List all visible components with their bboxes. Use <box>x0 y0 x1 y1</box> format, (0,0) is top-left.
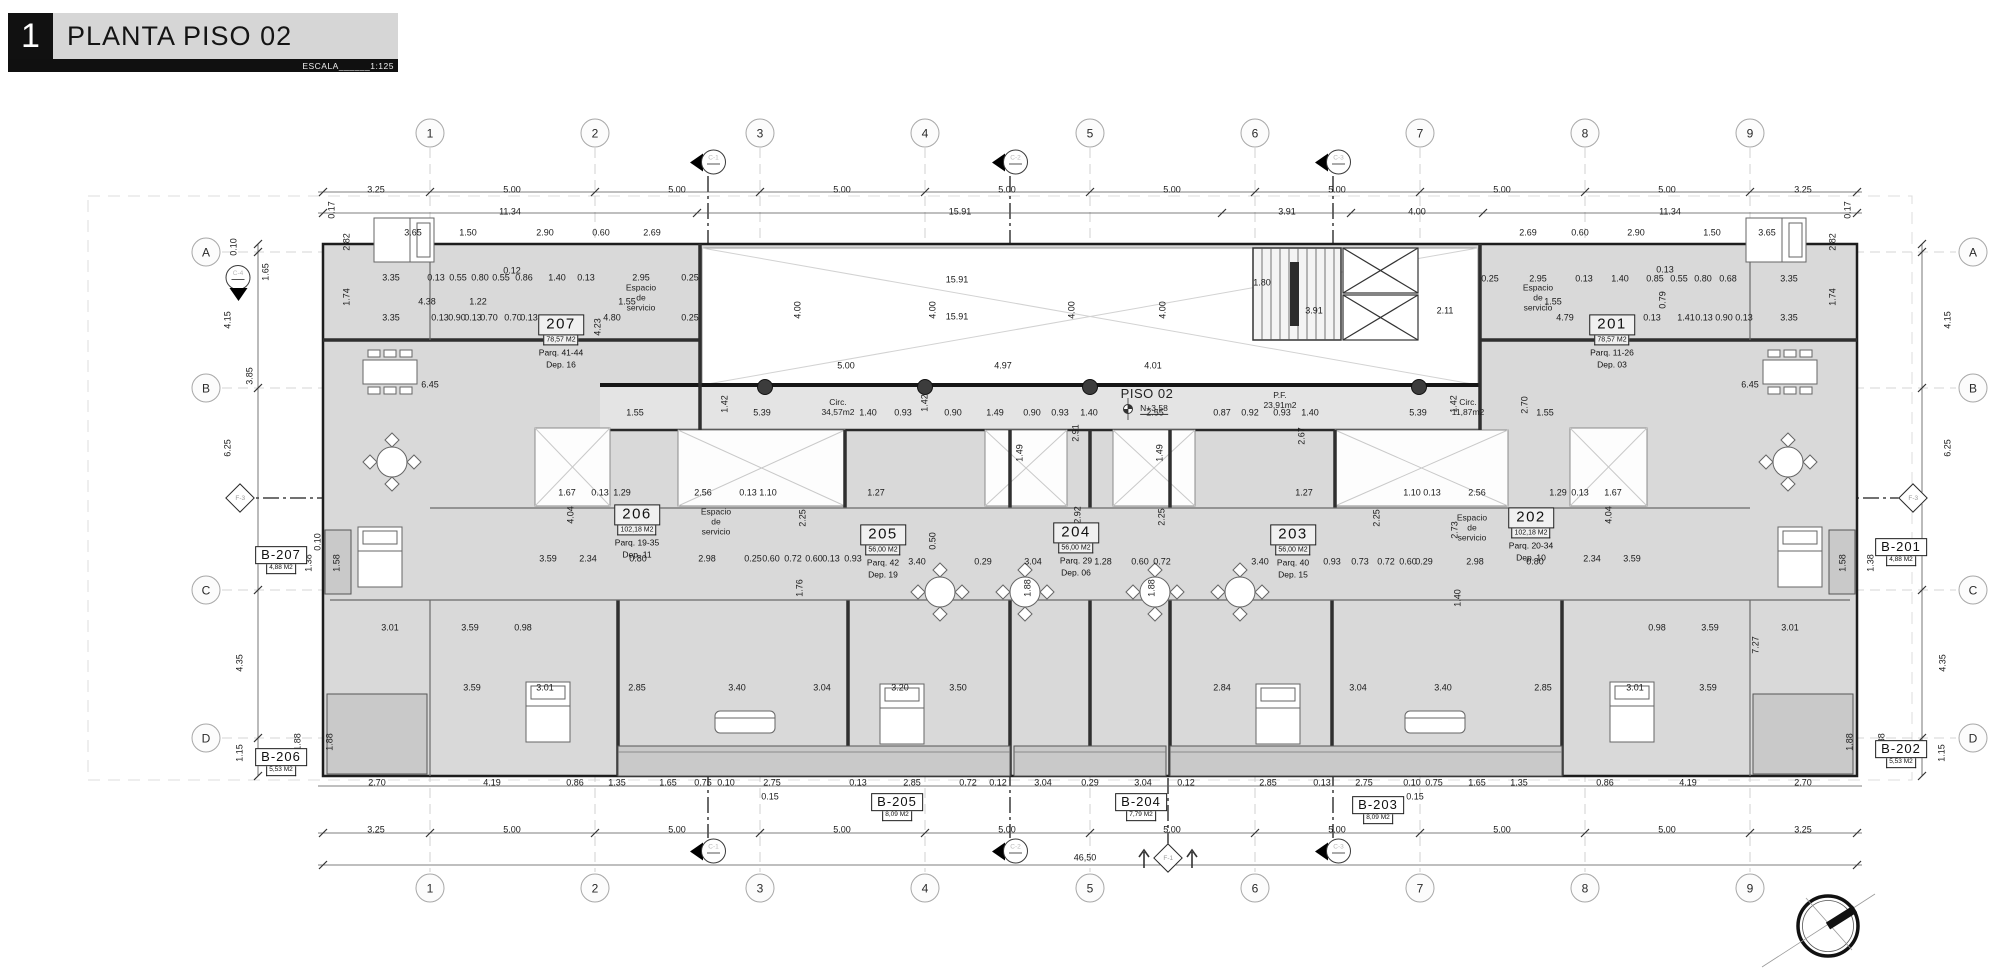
dimension-label: 5.00 <box>668 826 686 835</box>
dimension-label: 6.45 <box>421 381 439 390</box>
dimension-label: 2.91 <box>1072 424 1081 442</box>
dimension-label: 0.12 <box>503 267 521 276</box>
dimension-label: 3.25 <box>1794 826 1812 835</box>
dimension-label: 1.10 <box>1403 489 1421 498</box>
dimension-label: 0.13 <box>1423 489 1441 498</box>
dimension-label: 4.01 <box>1144 362 1162 371</box>
grid-bubble-row-D: D <box>192 724 221 753</box>
dimension-label: 2.67 <box>1298 427 1307 445</box>
dimension-label: 3.04 <box>1024 558 1042 567</box>
dimension-label: 2.92 <box>1074 506 1083 524</box>
dimension-label: 3.25 <box>367 186 385 195</box>
grid-bubble-col-8: 8 <box>1571 874 1600 903</box>
dimension-label: 0.80 <box>471 274 489 283</box>
dimension-label: 1.49 <box>1156 444 1165 462</box>
dimension-label: 0.15 <box>761 793 779 802</box>
plan-text: P.F. 23,91m2 <box>1263 390 1296 410</box>
dimension-label: 1.50 <box>459 229 477 238</box>
marker-label: C-4 <box>232 271 244 280</box>
dimension-label: 0.73 <box>1351 558 1369 567</box>
section-marker-C-4: C-4 <box>226 265 251 301</box>
dimension-label: 2.85 <box>1534 684 1552 693</box>
dimension-label: 0.25 <box>1481 275 1499 284</box>
dimension-label: 0.75 <box>694 779 712 788</box>
dimension-label: 3.25 <box>367 826 385 835</box>
unit-deposit: Dep. 10 <box>1508 552 1554 562</box>
dimension-label: 0.12 <box>1177 779 1195 788</box>
plan-text: Espacio de servicio <box>626 283 656 314</box>
dimension-label: 0.29 <box>974 558 992 567</box>
dimension-label: 0.98 <box>514 624 532 633</box>
dimension-label: 15.91 <box>946 276 969 285</box>
dimension-label: 3.40 <box>1434 684 1452 693</box>
unit-parking: Parq. 29 <box>1053 555 1099 565</box>
balcony-label-B-201: B-2014,88 M2 <box>1875 538 1927 566</box>
unit-number: 207 <box>538 314 584 335</box>
balcony-name: B-202 <box>1875 740 1927 758</box>
grid-bubble-col-2: 2 <box>581 119 610 148</box>
grid-bubble-col-7: 7 <box>1406 119 1435 148</box>
dimension-label: 0.90 <box>448 314 466 323</box>
dimension-label: 3.01 <box>381 624 399 633</box>
dimension-label: 46,50 <box>1074 854 1097 863</box>
dimension-label: 2.56 <box>694 489 712 498</box>
grid-bubble-col-3: 3 <box>746 874 775 903</box>
plan-text: Espacio de servicio <box>1523 283 1553 314</box>
dimension-label: 1.15 <box>236 744 245 762</box>
unit-area: 102,18 M2 <box>1511 528 1550 538</box>
annotation-overlay: 3.255.005.005.005.005.005.005.005.003.25… <box>0 0 2000 969</box>
dimension-label: 0.60 <box>762 555 780 564</box>
dimension-label: 0.72 <box>1377 558 1395 567</box>
dimension-label: 0.13 <box>464 314 482 323</box>
dimension-label: 3.59 <box>1623 555 1641 564</box>
dimension-label: 5.00 <box>503 826 521 835</box>
dimension-label: 1.40 <box>1454 589 1463 607</box>
dimension-label: 4.97 <box>994 362 1012 371</box>
dimension-label: 0.13 <box>1313 779 1331 788</box>
dimension-label: 0.72 <box>1153 558 1171 567</box>
dimension-label: 5.00 <box>1658 826 1676 835</box>
dimension-label: 2.56 <box>1468 489 1486 498</box>
unit-deposit: Dep. 15 <box>1270 569 1316 579</box>
dimension-label: 0.13 <box>1735 314 1753 323</box>
dimension-label: 2.25 <box>1158 508 1167 526</box>
dimension-label: 3.59 <box>1701 624 1719 633</box>
unit-parking: Parq. 20-34 <box>1508 540 1554 550</box>
section-circle-icon: C-4 <box>226 265 251 290</box>
section-marker-C-3: C-3 <box>1315 839 1351 864</box>
dimension-label: 4.00 <box>794 301 803 319</box>
unit-area: 78,57 M2 <box>1594 335 1629 345</box>
dimension-label: 0.13 <box>427 274 445 283</box>
dimension-label: 0.90 <box>944 409 962 418</box>
unit-area: 102,18 M2 <box>617 525 656 535</box>
dimension-label: 5.00 <box>503 186 521 195</box>
section-circle-icon: C-2 <box>1003 839 1028 864</box>
section-marker-C-1: C-1 <box>690 839 726 864</box>
grid-bubble-col-2: 2 <box>581 874 610 903</box>
dimension-label: 4.19 <box>1679 779 1697 788</box>
grid-bubble-col-1: 1 <box>416 119 445 148</box>
dimension-label: 0.29 <box>1081 779 1099 788</box>
unit-number: 206 <box>614 504 660 525</box>
dimension-label: 1.58 <box>333 554 342 572</box>
dimension-label: 3.25 <box>1794 186 1812 195</box>
unit-label-204: 20456,00 M2Parq. 29Dep. 06 <box>1053 522 1099 577</box>
dimension-label: 0.72 <box>959 779 977 788</box>
unit-deposit: Dep. 19 <box>860 569 906 579</box>
dimension-label: 2.34 <box>579 555 597 564</box>
dimension-label: 1.22 <box>469 298 487 307</box>
marker-label: C-3 <box>1332 845 1344 854</box>
plan-text: Circ. 11,87m2 <box>1452 397 1484 417</box>
unit-label-205: 20556,00 M2Parq. 42Dep. 19 <box>860 524 906 579</box>
dimension-label: 5.00 <box>998 186 1016 195</box>
dimension-label: 0.13 <box>520 314 538 323</box>
dimension-label: 3.85 <box>246 367 255 385</box>
dimension-label: 1.49 <box>1016 444 1025 462</box>
dimension-label: 6.25 <box>1944 439 1953 457</box>
dimension-label: 0.85 <box>1646 275 1664 284</box>
dimension-label: 1.29 <box>1549 489 1567 498</box>
dimension-label: 4.04 <box>1605 506 1614 524</box>
dimension-label: 2.85 <box>1259 779 1277 788</box>
unit-label-203: 20356,00 M2Parq. 40Dep. 15 <box>1270 524 1316 579</box>
dimension-label: 0.70 <box>480 314 498 323</box>
grid-bubble-col-5: 5 <box>1076 119 1105 148</box>
dimension-label: 1.40 <box>548 274 566 283</box>
dimension-label: 0.13 <box>591 489 609 498</box>
grid-bubble-row-A: A <box>192 238 221 267</box>
dimension-label: 0.60 <box>805 555 823 564</box>
dimension-label: 1.88 <box>1024 579 1033 597</box>
dimension-label: 2.90 <box>1627 229 1645 238</box>
dimension-label: 3.01 <box>1781 624 1799 633</box>
grid-bubble-col-4: 4 <box>911 874 940 903</box>
dimension-label: 3.91 <box>1278 208 1296 217</box>
dimension-label: 0.13 <box>1695 314 1713 323</box>
dimension-label: 0.93 <box>1323 558 1341 567</box>
dimension-label: 3.40 <box>728 684 746 693</box>
dimension-label: 3.35 <box>382 274 400 283</box>
dimension-label: 0.86 <box>1596 779 1614 788</box>
dimension-label: 2.75 <box>763 779 781 788</box>
dimension-label: 0.60 <box>1571 229 1589 238</box>
dimension-label: 0.13 <box>431 314 449 323</box>
dimension-label: 1.55 <box>1536 409 1554 418</box>
dimension-label: 0.10 <box>230 238 239 256</box>
dimension-label: 0.93 <box>1051 409 1069 418</box>
dimension-label: 3.01 <box>1626 684 1644 693</box>
marker-label: F-1 <box>1163 855 1173 862</box>
dimension-label: 3.20 <box>891 684 909 693</box>
dimension-label: 1.65 <box>262 263 271 281</box>
dimension-label: 1.50 <box>1703 229 1721 238</box>
dimension-label: 1.42 <box>721 395 730 413</box>
marker-label: C-2 <box>1009 156 1021 165</box>
dimension-label: 4.00 <box>1068 301 1077 319</box>
dimension-label: 3.65 <box>1758 229 1776 238</box>
dimension-label: 0.13 <box>739 489 757 498</box>
dimension-label: 4.00 <box>1159 301 1168 319</box>
dimension-label: 1.76 <box>796 579 805 597</box>
dimension-label: 3.04 <box>813 684 831 693</box>
grid-bubble-row-B: B <box>192 374 221 403</box>
balcony-area: 7,79 M2 <box>1126 811 1156 820</box>
balcony-area: 8,09 M2 <box>882 811 912 820</box>
dimension-label: 1.67 <box>558 489 576 498</box>
dimension-label: 5.00 <box>1328 186 1346 195</box>
dimension-label: 1.40 <box>1611 275 1629 284</box>
plan-text: Espacio de servicio <box>701 507 731 538</box>
dimension-label: 1.58 <box>1839 554 1848 572</box>
dimension-label: 3.50 <box>949 684 967 693</box>
unit-number: 204 <box>1053 522 1099 543</box>
dimension-label: 5.39 <box>1409 409 1427 418</box>
dimension-label: 7.27 <box>1752 636 1761 654</box>
unit-number: 202 <box>1508 507 1554 528</box>
dimension-label: 5.00 <box>1163 186 1181 195</box>
dimension-label: 5.00 <box>1493 826 1511 835</box>
dimension-label: 3.91 <box>1305 307 1323 316</box>
dimension-label: 2.11 <box>1437 307 1454 316</box>
grid-bubble-col-7: 7 <box>1406 874 1435 903</box>
dimension-label: 3.04 <box>1349 684 1367 693</box>
dimension-label: 5.00 <box>668 186 686 195</box>
dimension-label: 0.92 <box>1241 409 1259 418</box>
dimension-label: 11.34 <box>499 208 521 217</box>
dimension-label: 2.82 <box>343 233 352 251</box>
dimension-label: 2.82 <box>1829 233 1838 251</box>
grid-bubble-col-8: 8 <box>1571 119 1600 148</box>
dimension-label: 4.35 <box>1939 654 1948 672</box>
diamond-icon: F-3 <box>225 483 255 513</box>
marker-label: F-3 <box>1908 495 1918 502</box>
dimension-label: 1.15 <box>1938 744 1947 762</box>
dimension-label: 0.93 <box>844 555 862 564</box>
dimension-label: 0.86 <box>566 779 584 788</box>
dimension-label: 1.35 <box>608 779 626 788</box>
unit-parking: Parq. 19-35 <box>614 537 660 547</box>
dimension-label: 5.00 <box>1328 826 1346 835</box>
dimension-label: 0.17 <box>1844 201 1853 219</box>
dimension-label: 1.35 <box>1510 779 1528 788</box>
dimension-label: 3.40 <box>1251 558 1269 567</box>
unit-label-207: 20778,57 M2Parq. 41-44Dep. 16 <box>538 314 584 369</box>
unit-deposit: Dep. 11 <box>614 549 660 559</box>
section-marker-F-1: F-1 <box>1158 848 1179 869</box>
unit-parking: Parq. 11-26 <box>1589 347 1635 357</box>
dimension-label: 1.41 <box>1677 314 1695 323</box>
dimension-label: 4.00 <box>929 301 938 319</box>
dimension-label: 5.00 <box>1658 186 1676 195</box>
section-marker-C-1: C-1 <box>690 150 726 175</box>
dimension-label: 2.25 <box>1373 509 1382 527</box>
dimension-label: 0.60 <box>1131 558 1149 567</box>
dimension-label: 4.38 <box>418 298 436 307</box>
dimension-label: 1.27 <box>1295 489 1313 498</box>
dimension-label: 0.75 <box>1425 779 1443 788</box>
dimension-label: 0.13 <box>822 555 840 564</box>
dimension-label: 1.40 <box>1301 409 1319 418</box>
unit-deposit: Dep. 03 <box>1589 359 1635 369</box>
dimension-label: 0.80 <box>1694 275 1712 284</box>
grid-bubble-col-6: 6 <box>1241 874 1270 903</box>
dimension-label: 0.60 <box>1399 558 1417 567</box>
dimension-label: 1.88 <box>326 733 335 751</box>
marker-label: C-1 <box>707 845 719 854</box>
unit-label-201: 20178,57 M2Parq. 11-26Dep. 03 <box>1589 314 1635 369</box>
dimension-label: 0.60 <box>592 229 610 238</box>
balcony-label-B-204: B-2047,79 M2 <box>1115 793 1167 821</box>
dimension-label: 0.17 <box>328 201 337 219</box>
dimension-label: 3.04 <box>1134 779 1152 788</box>
balcony-label-B-207: B-2074,88 M2 <box>255 546 307 574</box>
balcony-area: 5,53 M2 <box>266 766 296 775</box>
unit-deposit: Dep. 06 <box>1053 567 1099 577</box>
diamond-icon: F-1 <box>1153 843 1183 873</box>
dimension-label: 0.55 <box>449 274 467 283</box>
balcony-area: 5,53 M2 <box>1886 758 1916 767</box>
grid-bubble-col-6: 6 <box>1241 119 1270 148</box>
dimension-label: 4.04 <box>567 506 576 524</box>
dimension-label: 2.84 <box>1213 684 1231 693</box>
unit-label-206: 206102,18 M2Parq. 19-35Dep. 11 <box>614 504 660 559</box>
floor-plan-sheet: 1 PLANTA PISO 02 ESCALA______1:125 3.255… <box>0 0 2000 969</box>
dimension-label: 2.95 <box>632 274 650 283</box>
dimension-label: 0.13 <box>849 779 867 788</box>
section-marker-C-2: C-2 <box>992 150 1028 175</box>
plan-text: N+3,58 <box>1140 403 1168 415</box>
dimension-label: 0.10 <box>1403 779 1421 788</box>
dimension-label: 2.85 <box>628 684 646 693</box>
balcony-name: B-205 <box>871 793 923 811</box>
dimension-label: 0.13 <box>577 274 595 283</box>
dimension-label: 1.40 <box>1080 409 1098 418</box>
dimension-label: 4.19 <box>483 779 501 788</box>
dimension-label: 1.29 <box>613 489 631 498</box>
balcony-name: B-207 <box>255 546 307 564</box>
section-circle-icon: C-2 <box>1003 150 1028 175</box>
unit-label-202: 202102,18 M2Parq. 20-34Dep. 10 <box>1508 507 1554 562</box>
dimension-label: 0.50 <box>929 532 938 550</box>
dimension-label: 5.00 <box>1493 186 1511 195</box>
dimension-label: 2.70 <box>1521 396 1530 414</box>
dimension-label: 1.42 <box>921 394 930 412</box>
dimension-label: 4.79 <box>1556 314 1574 323</box>
dimension-label: 2.25 <box>799 509 808 527</box>
dimension-label: 5.39 <box>753 409 771 418</box>
dimension-label: 1.55 <box>626 409 644 418</box>
dimension-label: 2.98 <box>1466 558 1484 567</box>
dimension-label: 0.13 <box>1571 489 1589 498</box>
dimension-label: 2.85 <box>903 779 921 788</box>
plan-text: Espacio de servicio <box>1457 513 1487 544</box>
dimension-label: 5.00 <box>833 826 851 835</box>
dimension-label: 0.25 <box>681 314 699 323</box>
dimension-label: 1.88 <box>1846 733 1855 751</box>
dimension-label: 4.23 <box>594 318 603 336</box>
dimension-label: 0.90 <box>1715 314 1733 323</box>
dimension-label: 4.80 <box>603 314 621 323</box>
grid-bubble-row-A: A <box>1959 238 1988 267</box>
dimension-label: 1.65 <box>659 779 677 788</box>
dimension-label: 3.04 <box>1034 779 1052 788</box>
dimension-label: 0.93 <box>894 409 912 418</box>
dimension-label: 1.49 <box>986 409 1004 418</box>
dimension-label: 3.59 <box>1699 684 1717 693</box>
grid-bubble-col-9: 9 <box>1736 874 1765 903</box>
section-circle-icon: C-1 <box>701 839 726 864</box>
dimension-label: 5.00 <box>837 362 855 371</box>
section-triangle-icon <box>229 288 247 301</box>
dimension-label: 3.65 <box>404 229 422 238</box>
grid-bubble-col-1: 1 <box>416 874 445 903</box>
dimension-label: 4.15 <box>1944 311 1953 329</box>
dimension-label: 4.35 <box>236 654 245 672</box>
balcony-label-B-206: B-2065,53 M2 <box>255 748 307 776</box>
balcony-area: 4,88 M2 <box>266 564 296 573</box>
dimension-label: 1.74 <box>343 288 352 306</box>
dimension-label: 3.59 <box>461 624 479 633</box>
section-marker-C-3: C-3 <box>1315 150 1351 175</box>
dimension-label: 2.69 <box>1519 229 1537 238</box>
dimension-label: 3.35 <box>382 314 400 323</box>
dimension-label: 15.91 <box>949 208 972 217</box>
dimension-label: 2.34 <box>1583 555 1601 564</box>
dimension-label: 11.34 <box>1659 208 1681 217</box>
balcony-label-B-203: B-2038,09 M2 <box>1352 796 1404 824</box>
balcony-area: 8,09 M2 <box>1363 814 1393 823</box>
unit-area: 56,00 M2 <box>1058 543 1093 553</box>
plan-text: PISO 02 <box>1121 386 1174 402</box>
dimension-label: 6.45 <box>1741 381 1759 390</box>
grid-bubble-col-9: 9 <box>1736 119 1765 148</box>
dimension-label: 2.70 <box>368 779 386 788</box>
marker-label: C-3 <box>1332 156 1344 165</box>
grid-bubble-row-C: C <box>1959 576 1988 605</box>
dimension-label: 1.38 <box>1867 554 1876 572</box>
marker-label: C-2 <box>1009 845 1021 854</box>
balcony-name: B-201 <box>1875 538 1927 556</box>
section-marker-F-3: F-3 <box>1903 488 1924 509</box>
plan-text: Circ. 34,57m2 <box>821 397 854 417</box>
dimension-label: 0.12 <box>989 779 1007 788</box>
unit-number: 205 <box>860 524 906 545</box>
dimension-label: 1.74 <box>1829 288 1838 306</box>
grid-bubble-row-B: B <box>1959 374 1988 403</box>
unit-area: 56,00 M2 <box>865 545 900 555</box>
dimension-label: 0.29 <box>1415 558 1433 567</box>
dimension-label: 3.01 <box>536 684 554 693</box>
section-circle-icon: C-3 <box>1326 839 1351 864</box>
dimension-label: 0.87 <box>1213 409 1231 418</box>
dimension-label: 0.90 <box>1023 409 1041 418</box>
dimension-label: 0.25 <box>744 555 762 564</box>
balcony-name: B-204 <box>1115 793 1167 811</box>
unit-parking: Parq. 40 <box>1270 557 1316 567</box>
balcony-label-B-202: B-2025,53 M2 <box>1875 740 1927 768</box>
dimension-label: 3.59 <box>463 684 481 693</box>
dimension-label: 2.90 <box>536 229 554 238</box>
dimension-label: 2.98 <box>698 555 716 564</box>
balcony-label-B-205: B-2058,09 M2 <box>871 793 923 821</box>
grid-bubble-col-4: 4 <box>911 119 940 148</box>
dimension-label: 1.80 <box>1253 279 1271 288</box>
dimension-label: 5.00 <box>833 186 851 195</box>
balcony-area: 4,88 M2 <box>1886 556 1916 565</box>
